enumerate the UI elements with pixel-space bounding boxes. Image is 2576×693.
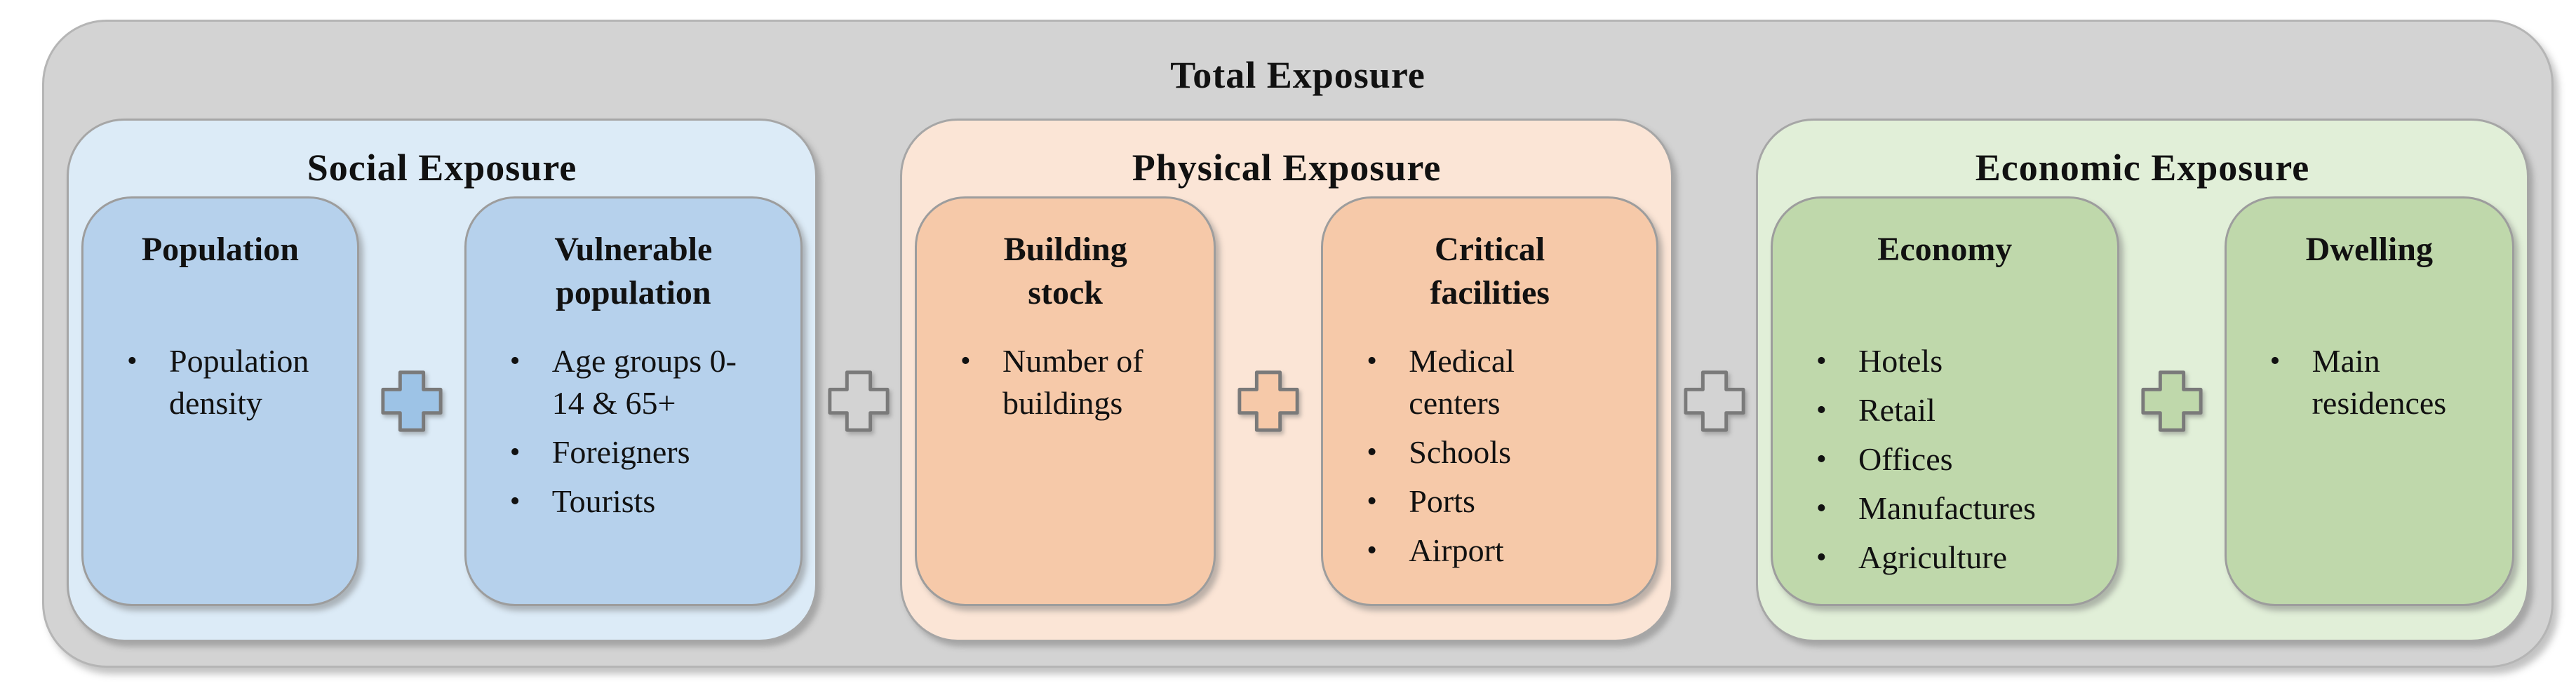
section-social-exposure: Social Exposure Population •Population d… xyxy=(67,119,817,642)
bullet-text: Schools xyxy=(1409,431,1511,473)
bullet-marker: • xyxy=(952,340,1002,424)
plus-icon xyxy=(826,368,892,434)
population-list: •Population density xyxy=(100,340,340,431)
bullet-text: Number of buildings xyxy=(1002,340,1197,424)
section-title-social: Social Exposure xyxy=(81,121,803,196)
social-boxes-row: Population •Population density Vulnerabl… xyxy=(81,196,803,606)
section-economic-exposure: Economic Exposure Economy •Hotels•Retail… xyxy=(1756,119,2529,642)
bullet-marker: • xyxy=(1808,438,1858,480)
bullet-text: Population density xyxy=(169,340,340,424)
bullet-item: •Manufactures xyxy=(1808,487,2100,530)
bullet-marker: • xyxy=(1358,340,1409,424)
bullet-text: Airport xyxy=(1409,530,1503,572)
box-title-economy: Economy xyxy=(1877,228,2012,333)
diagram-title: Total Exposure xyxy=(67,22,2529,119)
plus-icon xyxy=(1682,368,1747,434)
bullet-marker: • xyxy=(1358,480,1409,523)
vulnerable-population-list: •Age groups 0-14 & 65+•Foreigners•Touris… xyxy=(483,340,784,530)
box-title-vulnerable-population: Vulnerable population xyxy=(538,228,729,333)
bullet-item: •Medical centers xyxy=(1358,340,1639,424)
section-physical-exposure: Physical Exposure Building stock •Number… xyxy=(900,119,1673,642)
bullet-marker: • xyxy=(1808,537,1858,579)
box-economy: Economy •Hotels•Retail•Offices•Manufactu… xyxy=(1771,196,2119,606)
box-title-building-stock: Building stock xyxy=(970,228,1161,333)
bullet-marker: • xyxy=(119,340,169,424)
bullet-marker: • xyxy=(1358,431,1409,473)
box-population: Population •Population density xyxy=(81,196,359,606)
bullet-item: •Age groups 0-14 & 65+ xyxy=(502,340,784,424)
bullet-item: •Airport xyxy=(1358,530,1639,572)
box-title-dwelling: Dwelling xyxy=(2306,228,2433,333)
bullet-item: •Hotels xyxy=(1808,340,2100,382)
box-vulnerable-population: Vulnerable population •Age groups 0-14 &… xyxy=(464,196,803,606)
economic-boxes-row: Economy •Hotels•Retail•Offices•Manufactu… xyxy=(1771,196,2514,606)
bullet-text: Retail xyxy=(1858,389,1936,431)
box-critical-facilities: Critical facilities •Medical centers•Sch… xyxy=(1321,196,1658,606)
physical-inner-plus-gap xyxy=(1216,196,1321,606)
box-dwelling: Dwelling •Main residences xyxy=(2225,196,2514,606)
bullet-text: Age groups 0-14 & 65+ xyxy=(552,340,752,424)
box-title-population: Population xyxy=(142,228,299,333)
bullet-marker: • xyxy=(1808,389,1858,431)
bullet-item: •Population density xyxy=(119,340,340,424)
economic-inner-plus-gap xyxy=(2119,196,2225,606)
bullet-marker: • xyxy=(2262,340,2312,424)
plus-icon xyxy=(379,368,445,434)
bullet-text: Ports xyxy=(1409,480,1475,523)
bullet-marker: • xyxy=(502,431,552,473)
critical-facilities-list: •Medical centers•Schools•Ports•Airport xyxy=(1340,340,1639,579)
total-exposure-container: Total Exposure Social Exposure Populatio… xyxy=(42,20,2554,668)
sections-row: Social Exposure Population •Population d… xyxy=(67,119,2529,642)
section-title-physical: Physical Exposure xyxy=(915,121,1658,196)
box-title-critical-facilities: Critical facilities xyxy=(1395,228,1585,333)
section-title-economic: Economic Exposure xyxy=(1771,121,2514,196)
building-stock-list: •Number of buildings xyxy=(934,340,1197,431)
bullet-item: •Main residences xyxy=(2262,340,2495,424)
bullet-marker: • xyxy=(1808,340,1858,382)
dwelling-list: •Main residences xyxy=(2243,340,2495,431)
bullet-text: Tourists xyxy=(552,480,656,523)
bullet-text: Hotels xyxy=(1858,340,1943,382)
bullet-item: •Agriculture xyxy=(1808,537,2100,579)
bullet-marker: • xyxy=(502,480,552,523)
bullet-text: Medical centers xyxy=(1409,340,1609,424)
plus-icon xyxy=(1235,368,1301,434)
bullet-text: Foreigners xyxy=(552,431,690,473)
economy-list: •Hotels•Retail•Offices•Manufactures•Agri… xyxy=(1790,340,2100,586)
social-physical-gap xyxy=(817,119,900,642)
box-building-stock: Building stock •Number of buildings xyxy=(915,196,1216,606)
bullet-text: Agriculture xyxy=(1858,537,2007,579)
bullet-text: Offices xyxy=(1858,438,1953,480)
bullet-item: •Number of buildings xyxy=(952,340,1197,424)
bullet-item: •Foreigners xyxy=(502,431,784,473)
social-inner-plus-gap xyxy=(359,196,464,606)
bullet-marker: • xyxy=(1358,530,1409,572)
bullet-text: Manufactures xyxy=(1858,487,2036,530)
bullet-item: •Tourists xyxy=(502,480,784,523)
bullet-text: Main residences xyxy=(2312,340,2495,424)
bullet-item: •Retail xyxy=(1808,389,2100,431)
bullet-marker: • xyxy=(1808,487,1858,530)
physical-boxes-row: Building stock •Number of buildings Crit… xyxy=(915,196,1658,606)
bullet-marker: • xyxy=(502,340,552,424)
bullet-item: •Ports xyxy=(1358,480,1639,523)
bullet-item: •Schools xyxy=(1358,431,1639,473)
plus-icon xyxy=(2139,368,2205,434)
bullet-item: •Offices xyxy=(1808,438,2100,480)
physical-economic-gap xyxy=(1673,119,1756,642)
